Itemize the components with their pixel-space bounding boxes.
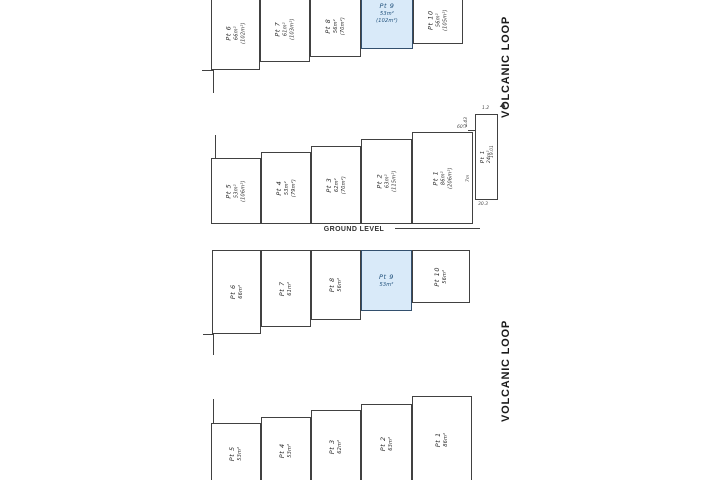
boundary-tick-line [203, 334, 213, 335]
lot-pt6-upper-mid: Pt 6 66m² [212, 250, 261, 334]
lot-label: Pt 1 86m² (206m²) [431, 167, 453, 189]
dimension-label: 19.01 [490, 145, 495, 158]
ground-level-label: GROUND LEVEL [304, 226, 404, 233]
lot-label: Pt 4 53m² [278, 443, 294, 458]
dimension-label: 7m [466, 175, 471, 182]
lot-label: Pt 5 53m² (106m²) [225, 180, 247, 202]
annex-step-line [468, 130, 475, 131]
lot-label: Pt 8 56m² (70m²) [324, 17, 346, 35]
lot-label: Pt 7 61m² [278, 281, 294, 296]
dimension-label: 30.3 [478, 202, 488, 207]
lot-pt5-ground: Pt 5 53m² (106m²) [211, 158, 261, 224]
kerb-line [395, 228, 480, 229]
lot-label: Pt 9 53m² (102m²) [376, 0, 398, 24]
lot-label: Pt 7 61m² (103m²) [274, 18, 296, 40]
lot-pt10-upper-top: Pt 10 56m² (105m²) [413, 0, 463, 44]
lot-label: Pt 1 86m² [434, 432, 450, 447]
boundary-tick-line [202, 70, 213, 71]
lot-label: Pt 10 56m² (105m²) [427, 9, 449, 31]
boundary-tick-line [213, 399, 214, 423]
lot-label: Pt 10 56m² [433, 267, 449, 287]
lot-label: Pt 3 62m² (70m²) [325, 176, 347, 194]
lot-label: Pt 6 66m² [229, 284, 245, 299]
lot-label: Pt 6 66m² (102m²) [224, 22, 246, 44]
lot-pt9-upper-top-highlighted: Pt 9 53m² (102m²) [361, 0, 413, 49]
boundary-hook-line [213, 70, 214, 93]
dimension-label: 60.7 [457, 125, 467, 130]
lot-pt2-ground-bottom: Pt 2 63m² [361, 404, 412, 480]
lot-pt7-upper-top: Pt 7 61m² (103m²) [260, 0, 310, 62]
lot-label: Pt 8 56m² [328, 277, 344, 292]
lot-pt1-ground: Pt 1 86m² (206m²) [412, 132, 473, 224]
lot-label: Pt 5 53m² [228, 446, 244, 461]
lot-pt3-ground: Pt 3 62m² (70m²) [311, 146, 361, 224]
dimension-label: 1.2 [482, 106, 489, 111]
boundary-tick-line [215, 135, 216, 158]
lot-label: Pt 9 53m² [379, 273, 394, 289]
lot-label: Pt 4 53m² (79m²) [275, 179, 297, 197]
lot-pt8-upper-top: Pt 8 56m² (70m²) [310, 0, 361, 57]
lot-pt2-ground: Pt 2 63m² (115m²) [361, 139, 412, 224]
lot-pt6-upper-top: Pt 6 66m² (102m²) [211, 0, 260, 70]
lot-pt7-upper-mid: Pt 7 61m² [261, 250, 311, 327]
lot-label: Pt 2 63m² [379, 436, 395, 451]
lot-label: Pt 2 63m² (115m²) [375, 171, 397, 193]
lot-pt8-upper-mid: Pt 8 56m² [311, 250, 361, 320]
lot-pt3-ground-bottom: Pt 3 62m² [311, 410, 361, 480]
street-label-volcanic-loop-bottom: VOLCANIC LOOP [500, 311, 512, 431]
lot-pt9-upper-mid-highlighted: Pt 9 53m² [361, 250, 412, 311]
lot-pt4-ground: Pt 4 53m² (79m²) [261, 152, 311, 224]
boundary-hook-line [213, 334, 214, 355]
lot-pt4-ground-bottom: Pt 4 53m² [261, 417, 311, 480]
lot-label: Pt 3 62m² [328, 439, 344, 454]
lot-pt10-upper-mid: Pt 10 56m² [412, 250, 470, 303]
lot-pt1-ground-bottom: Pt 1 86m² [412, 396, 472, 480]
lot-pt5-ground-bottom: Pt 5 53m² [211, 423, 261, 480]
strata-plan-canvas: Pt 6 66m² (102m²) Pt 7 61m² (103m²) Pt 8… [0, 0, 712, 480]
